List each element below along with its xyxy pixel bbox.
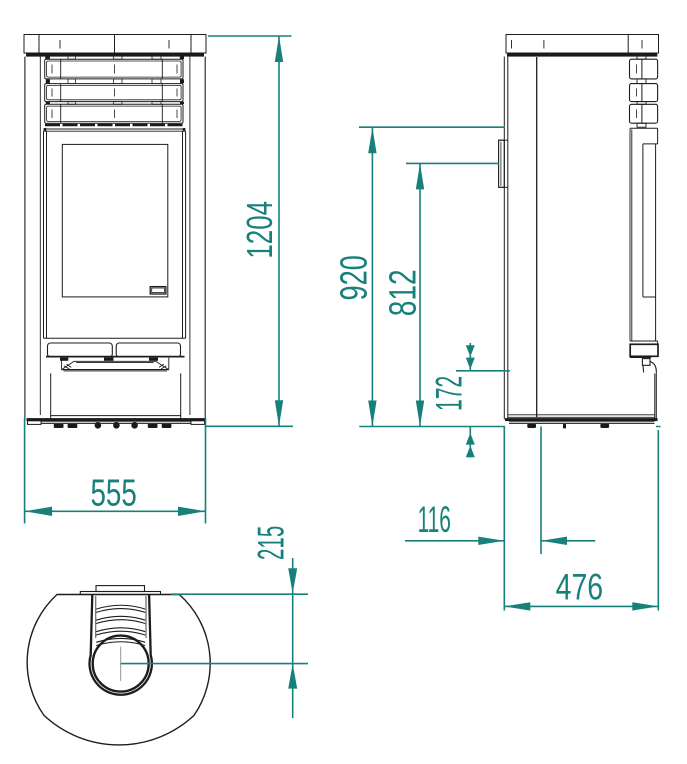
svg-text:215: 215 [251, 526, 292, 560]
svg-text:116: 116 [418, 500, 451, 541]
svg-text:476: 476 [556, 567, 604, 609]
svg-text:555: 555 [91, 472, 137, 514]
svg-text:812: 812 [383, 269, 425, 316]
svg-text:1204: 1204 [240, 201, 280, 259]
svg-text:172: 172 [429, 376, 470, 411]
svg-text:920: 920 [332, 255, 375, 300]
